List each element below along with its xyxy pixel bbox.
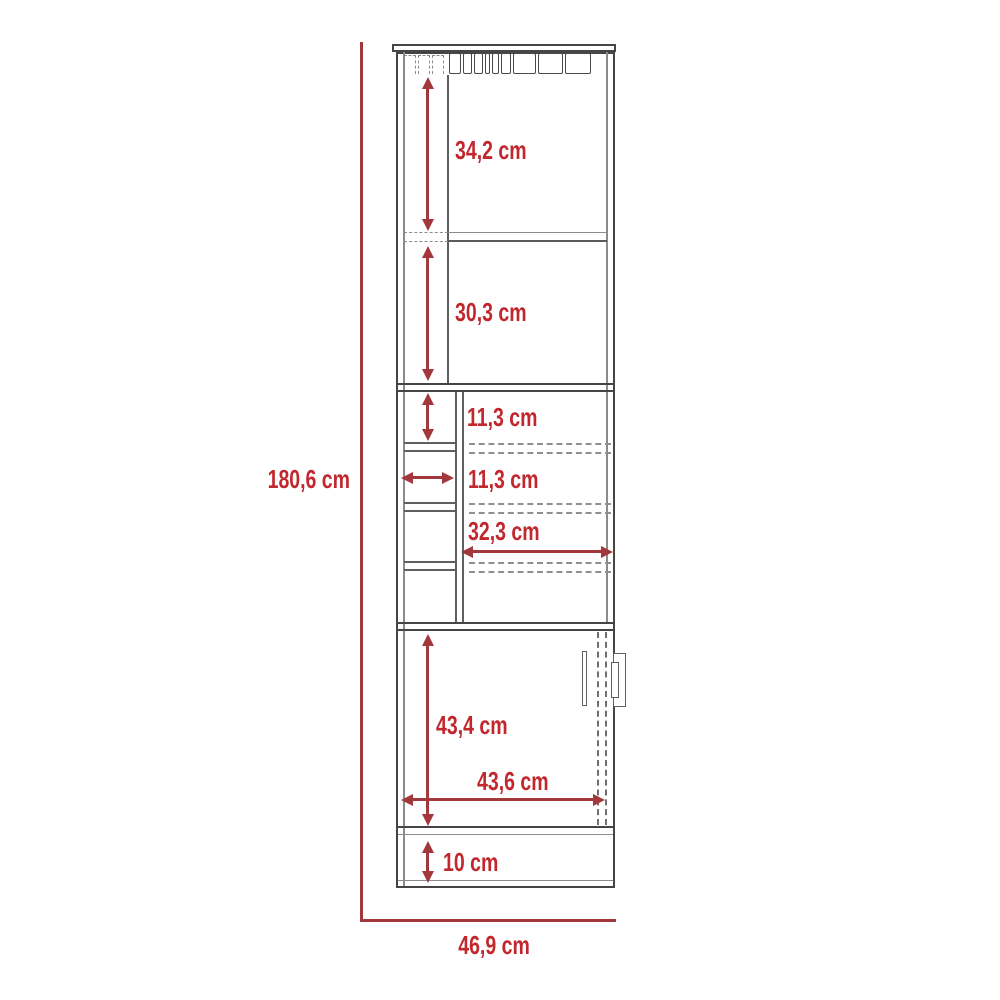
cubby-shelf (404, 442, 455, 452)
dim-arrow-base-height (426, 853, 429, 871)
door-hidden-edge (605, 632, 607, 825)
overall-height-dimension-line (360, 42, 363, 922)
hidden-shelf-line (469, 443, 611, 445)
stemware-rack-rail (565, 53, 591, 74)
hidden-shelf-line (469, 571, 611, 573)
dim-label-total-height: 180,6 cm (238, 466, 351, 492)
dim-arrow-top-section (426, 89, 429, 219)
middle-divider-panel-line (462, 392, 464, 623)
shelf1-hidden-edge (404, 241, 448, 242)
stemware-rack-rail (501, 53, 511, 74)
upper-divider-panel (447, 75, 449, 385)
dim-arrow-second-section (426, 258, 429, 369)
inner-left-wall-line (403, 52, 405, 886)
stemware-rack-rail (513, 53, 536, 74)
stemware-rack-rail (492, 53, 499, 74)
dim-label-base-height: 10 cm (443, 849, 498, 875)
shelf1 (448, 232, 607, 242)
cabinet-top-panel (392, 44, 616, 52)
middle-divider-panel-line (455, 392, 457, 623)
hidden-shelf-line (469, 512, 611, 514)
dim-label-door-width: 43,6 cm (477, 768, 549, 794)
dim-arrow-door-height (426, 646, 429, 814)
stemware-rack-hidden-slot (418, 55, 430, 74)
door-handle-side-notch (611, 662, 619, 698)
door-cabinet-top (398, 622, 613, 631)
door-cabinet-bottom (398, 826, 613, 835)
dim-arrow-cubby-width (413, 476, 442, 479)
dim-arrow-cubby-height (426, 405, 429, 429)
overall-width-dimension-line (360, 919, 616, 922)
hidden-shelf-line (469, 503, 611, 505)
inner-right-wall-line (606, 52, 608, 623)
hidden-shelf-line (469, 452, 611, 454)
cubby-shelf (404, 561, 455, 571)
cabinet-dimension-diagram: 34,2 cm 30,3 cm 11,3 cm 11,3 cm 32,3 cm … (0, 0, 1000, 1000)
dim-label-top-section: 34,2 cm (455, 137, 527, 163)
dim-label-interior-width: 32,3 cm (468, 518, 540, 544)
stemware-rack-hidden-slot (404, 55, 416, 74)
stemware-rack-rail (474, 53, 483, 74)
cubby-shelf (404, 502, 455, 512)
stemware-rack-rail (463, 53, 472, 74)
dim-label-cubby-width: 11,3 cm (468, 466, 538, 492)
door-handle-front (582, 651, 587, 706)
dim-label-second-section: 30,3 cm (455, 299, 527, 325)
dim-arrow-interior-width (473, 550, 601, 553)
stemware-rack-rail (449, 53, 461, 74)
stemware-rack-rail (485, 53, 490, 74)
dim-arrow-door-width (413, 798, 593, 801)
stemware-rack-rail (538, 53, 563, 74)
stemware-rack-hidden-slot (432, 55, 444, 74)
dim-label-total-width: 46,9 cm (434, 932, 554, 958)
shelf2 (398, 383, 613, 392)
dim-label-door-height: 43,4 cm (436, 712, 508, 738)
hidden-shelf-line (469, 562, 611, 564)
dim-label-cubby-height: 11,3 cm (467, 404, 537, 430)
shelf1-hidden-edge (404, 232, 448, 233)
